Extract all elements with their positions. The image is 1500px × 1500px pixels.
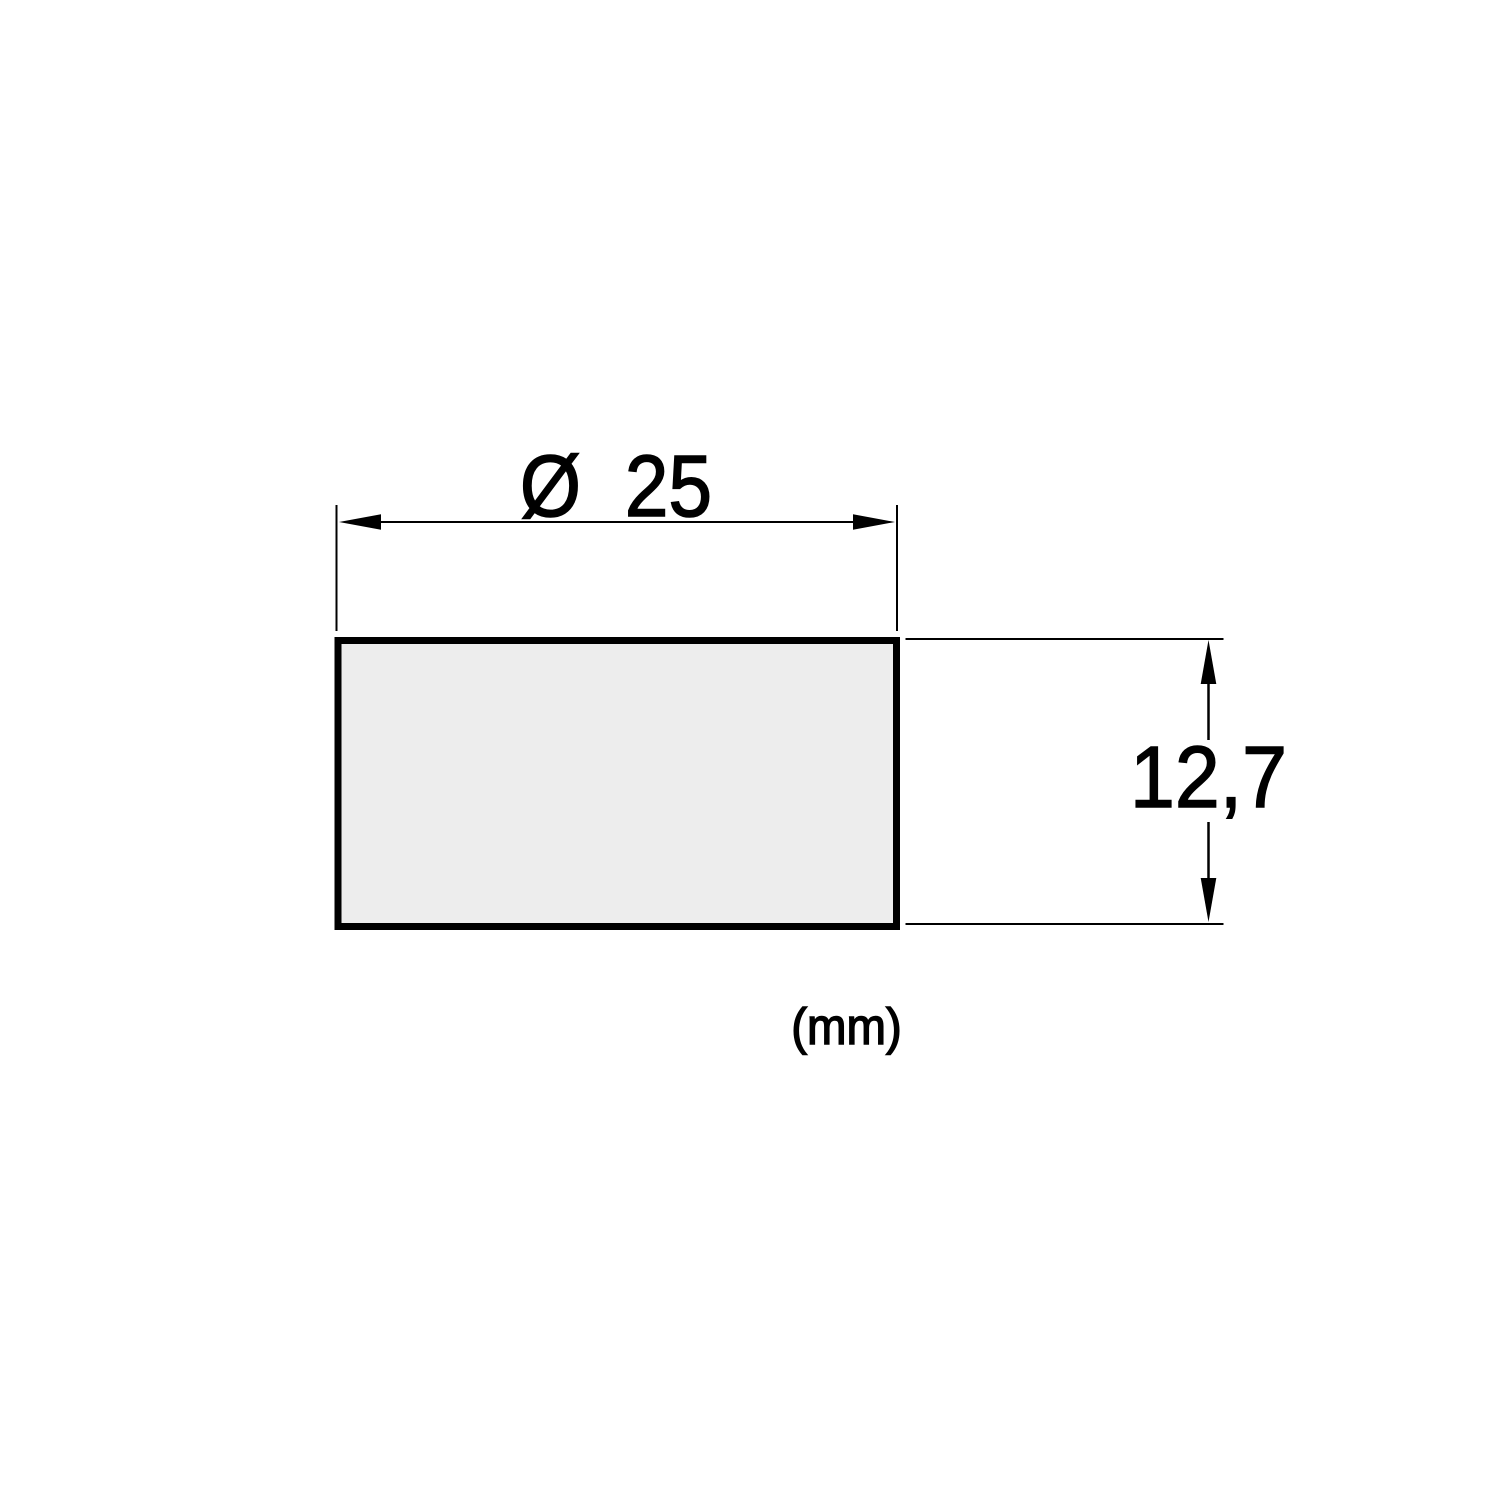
svg-text:12,7: 12,7 (1130, 728, 1287, 825)
svg-text:(mm): (mm) (791, 998, 901, 1055)
svg-text:Ø 25: Ø 25 (520, 437, 712, 535)
